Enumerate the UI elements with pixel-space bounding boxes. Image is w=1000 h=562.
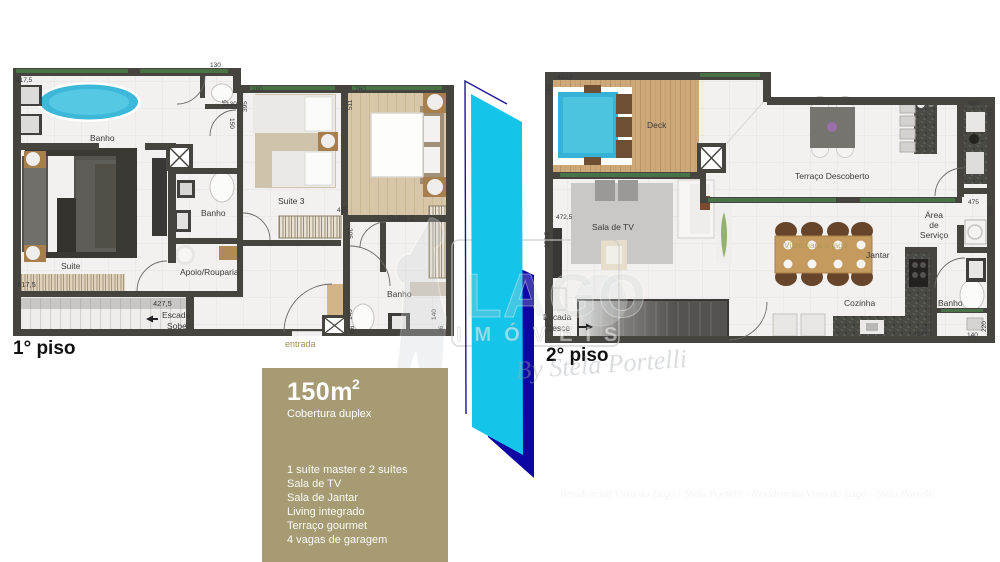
svg-text:Terraço gourmet: Terraço gourmet: [287, 520, 367, 532]
svg-text:1° piso: 1° piso: [13, 338, 76, 359]
svg-text:Cobertura duplex: Cobertura duplex: [287, 408, 372, 420]
svg-text:150: 150: [228, 118, 235, 129]
svg-text:475: 475: [968, 199, 979, 206]
svg-text:Apoio/Rouparia: Apoio/Rouparia: [180, 267, 239, 277]
svg-text:Sala de Jantar: Sala de Jantar: [287, 492, 358, 504]
svg-text:417,5: 417,5: [17, 280, 36, 289]
svg-text:130: 130: [226, 101, 237, 108]
svg-text:Sobe: Sobe: [167, 321, 187, 331]
svg-text:Banho: Banho: [90, 133, 115, 143]
svg-text:395: 395: [242, 101, 249, 112]
svg-text:Sala de TV: Sala de TV: [592, 222, 634, 232]
svg-text:205: 205: [346, 228, 353, 239]
svg-text:LAGO: LAGO: [464, 262, 647, 331]
svg-text:140: 140: [347, 309, 354, 320]
svg-text:130: 130: [210, 62, 221, 69]
svg-text:511: 511: [347, 99, 354, 110]
svg-text:Suite 2: Suite 2: [388, 213, 415, 223]
svg-text:Vista para o lago: Vista para o lago: [784, 240, 848, 250]
svg-text:Suite: Suite: [61, 261, 81, 271]
svg-text:235: 235: [922, 323, 929, 334]
svg-text:150m: 150m: [287, 378, 353, 406]
svg-text:250: 250: [546, 84, 553, 95]
svg-text:2: 2: [352, 376, 360, 392]
svg-text:250: 250: [985, 108, 992, 119]
svg-text:472,5: 472,5: [556, 214, 573, 221]
svg-text:By Stela Portelli: By Stela Portelli: [514, 344, 687, 385]
svg-text:Escada: Escada: [162, 310, 191, 320]
svg-text:Deck: Deck: [647, 120, 667, 130]
svg-text:Banho: Banho: [201, 208, 226, 218]
svg-text:260: 260: [355, 86, 366, 93]
svg-text:475: 475: [337, 207, 348, 214]
svg-text:Serviço: Serviço: [920, 230, 949, 240]
svg-text:de: de: [929, 220, 939, 230]
svg-text:4 vagas de garagem: 4 vagas de garagem: [287, 534, 387, 546]
svg-text:220: 220: [981, 321, 988, 332]
svg-text:Living integrado: Living integrado: [287, 506, 365, 518]
svg-text:1 suíte master e 2 suítes: 1 suíte master e 2 suítes: [287, 464, 408, 476]
svg-text:417,5: 417,5: [16, 77, 33, 84]
svg-text:Cozinha: Cozinha: [844, 298, 875, 308]
svg-text:590: 590: [968, 101, 979, 108]
svg-text:280: 280: [252, 86, 263, 93]
svg-text:86: 86: [349, 325, 356, 333]
svg-text:Suite 3: Suite 3: [278, 196, 305, 206]
svg-text:Terraço Descoberto: Terraço Descoberto: [795, 171, 869, 181]
svg-text:427,5: 427,5: [153, 299, 172, 308]
svg-text:Residencial Vista do Lago -: Residencial Vista do Lago - Stela Portel…: [559, 488, 934, 500]
svg-text:Jantar: Jantar: [866, 250, 890, 260]
svg-text:403,5: 403,5: [557, 74, 574, 81]
svg-text:Sala de TV: Sala de TV: [287, 478, 342, 490]
svg-text:entrada: entrada: [285, 339, 316, 349]
svg-text:IMÓVEIS: IMÓVEIS: [456, 322, 630, 346]
svg-text:140: 140: [967, 332, 978, 339]
svg-text:Área: Área: [925, 210, 943, 220]
svg-text:205: 205: [986, 206, 993, 217]
svg-text:Banho: Banho: [938, 298, 963, 308]
